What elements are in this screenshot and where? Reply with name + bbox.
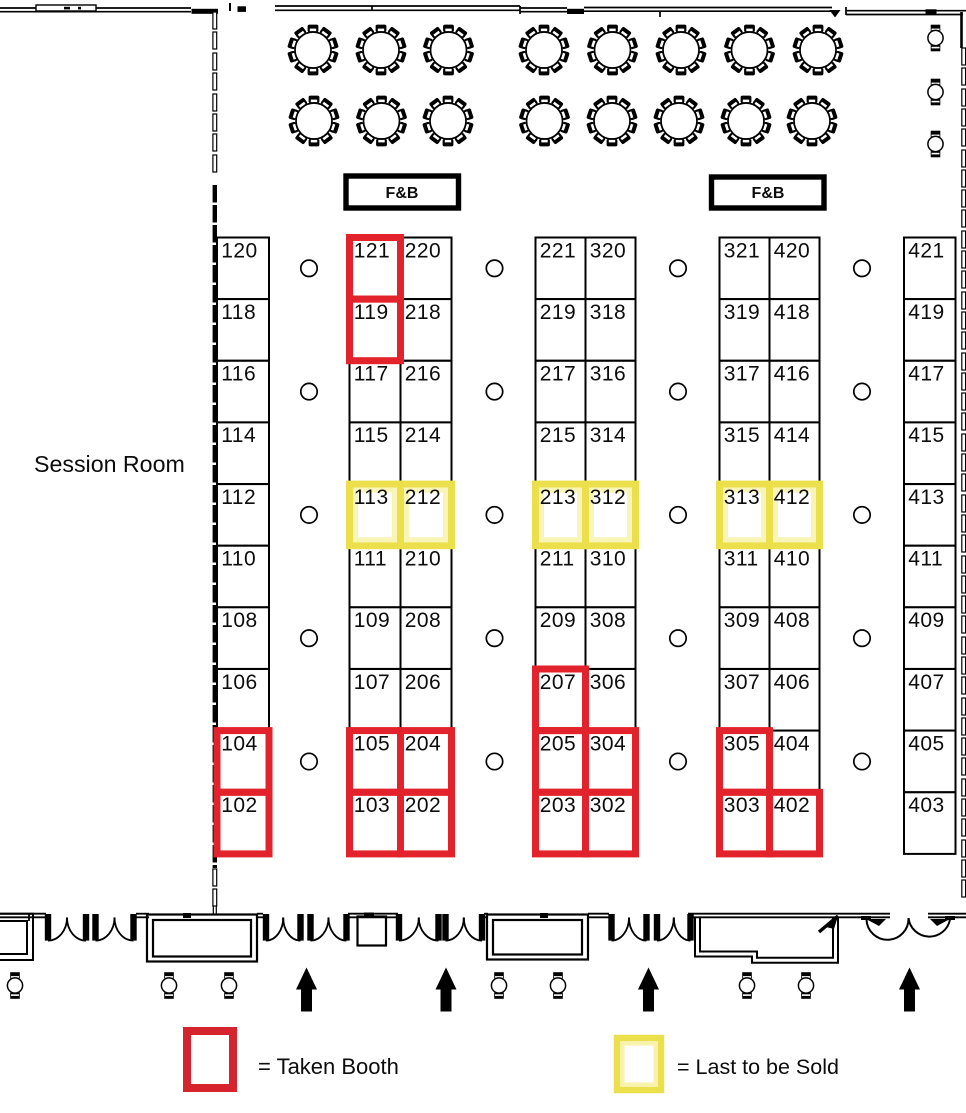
svg-text:110: 110 — [221, 548, 256, 571]
svg-text:107: 107 — [354, 671, 391, 694]
svg-text:320: 320 — [590, 239, 627, 262]
svg-text:215: 215 — [540, 424, 577, 447]
svg-text:313: 313 — [724, 486, 761, 509]
svg-text:209: 209 — [540, 609, 577, 632]
svg-text:321: 321 — [724, 239, 761, 262]
svg-text:406: 406 — [774, 671, 811, 694]
svg-text:114: 114 — [221, 424, 256, 447]
svg-text:106: 106 — [221, 671, 258, 694]
svg-text:414: 414 — [774, 424, 811, 447]
svg-text:307: 307 — [724, 671, 761, 694]
svg-text:121: 121 — [354, 239, 391, 262]
svg-text:419: 419 — [908, 301, 945, 324]
svg-text:411: 411 — [908, 548, 943, 571]
svg-text:420: 420 — [774, 239, 811, 262]
svg-text:217: 217 — [540, 363, 577, 386]
svg-text:310: 310 — [590, 548, 627, 571]
svg-text:311: 311 — [724, 548, 759, 571]
svg-text:404: 404 — [774, 732, 811, 755]
svg-text:213: 213 — [540, 486, 577, 509]
svg-text:208: 208 — [405, 609, 442, 632]
svg-text:103: 103 — [354, 794, 391, 817]
svg-text:F&B: F&B — [752, 185, 785, 202]
svg-text:108: 108 — [221, 609, 258, 632]
svg-text:315: 315 — [724, 424, 761, 447]
svg-text:306: 306 — [590, 671, 627, 694]
svg-text:221: 221 — [540, 239, 577, 262]
svg-text:413: 413 — [908, 486, 945, 509]
svg-text:115: 115 — [354, 424, 389, 447]
svg-text:304: 304 — [590, 732, 627, 755]
svg-text:220: 220 — [405, 239, 442, 262]
svg-text:416: 416 — [774, 363, 811, 386]
svg-text:409: 409 — [908, 609, 945, 632]
svg-text:318: 318 — [590, 301, 627, 324]
svg-text:308: 308 — [590, 609, 627, 632]
svg-text:405: 405 — [908, 732, 945, 755]
svg-text:= Last to be Sold: = Last to be Sold — [677, 1055, 839, 1079]
svg-text:305: 305 — [724, 732, 761, 755]
svg-text:212: 212 — [405, 486, 442, 509]
svg-text:402: 402 — [774, 794, 811, 817]
svg-text:120: 120 — [221, 239, 258, 262]
svg-text:410: 410 — [774, 548, 811, 571]
svg-text:309: 309 — [724, 609, 761, 632]
svg-text:302: 302 — [590, 794, 627, 817]
svg-text:105: 105 — [354, 732, 391, 755]
svg-text:412: 412 — [774, 486, 811, 509]
svg-text:415: 415 — [908, 424, 945, 447]
svg-text:219: 219 — [540, 301, 577, 324]
svg-text:316: 316 — [590, 363, 627, 386]
svg-text:216: 216 — [405, 363, 442, 386]
svg-text:211: 211 — [540, 548, 575, 571]
svg-text:205: 205 — [540, 732, 577, 755]
svg-text:312: 312 — [590, 486, 627, 509]
svg-text:111: 111 — [354, 548, 387, 571]
svg-text:112: 112 — [221, 486, 256, 509]
svg-text:317: 317 — [724, 363, 761, 386]
svg-text:403: 403 — [908, 794, 945, 817]
svg-text:314: 314 — [590, 424, 627, 447]
svg-text:204: 204 — [405, 732, 442, 755]
svg-text:202: 202 — [405, 794, 442, 817]
svg-text:116: 116 — [221, 363, 256, 386]
svg-text:407: 407 — [908, 671, 945, 694]
svg-text:117: 117 — [354, 363, 389, 386]
svg-text:118: 118 — [221, 301, 256, 324]
svg-text:418: 418 — [774, 301, 811, 324]
svg-text:214: 214 — [405, 424, 442, 447]
svg-text:= Taken Booth: = Taken Booth — [258, 1054, 399, 1079]
svg-text:Session Room: Session Room — [34, 451, 185, 477]
svg-text:218: 218 — [405, 301, 442, 324]
svg-text:109: 109 — [354, 609, 391, 632]
svg-text:104: 104 — [221, 732, 258, 755]
svg-text:113: 113 — [354, 486, 389, 509]
svg-text:210: 210 — [405, 548, 442, 571]
svg-text:421: 421 — [908, 239, 945, 262]
svg-text:F&B: F&B — [386, 185, 419, 202]
svg-text:303: 303 — [724, 794, 761, 817]
svg-text:408: 408 — [774, 609, 811, 632]
svg-text:319: 319 — [724, 301, 761, 324]
svg-text:102: 102 — [221, 794, 258, 817]
svg-text:206: 206 — [405, 671, 442, 694]
svg-text:207: 207 — [540, 671, 577, 694]
svg-text:203: 203 — [540, 794, 577, 817]
svg-text:417: 417 — [908, 363, 945, 386]
svg-text:119: 119 — [354, 301, 389, 324]
